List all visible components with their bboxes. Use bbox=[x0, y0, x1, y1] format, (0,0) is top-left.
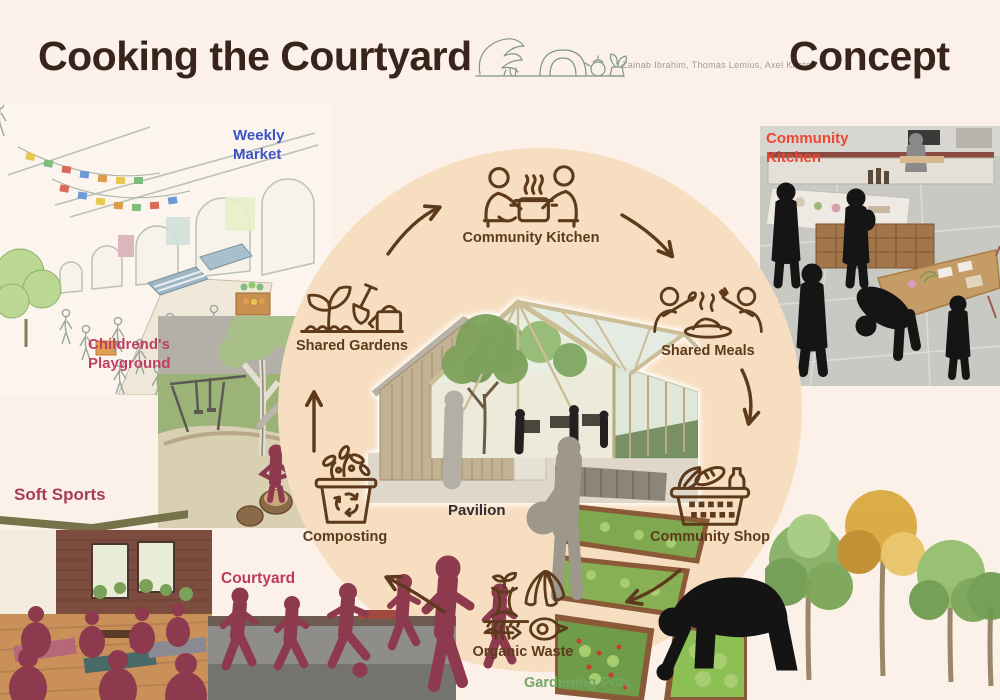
food-scraps-icon bbox=[477, 564, 571, 642]
cycle-step-community-shop: Community Shop bbox=[620, 529, 800, 546]
sprout-shovel-watering-can-icon bbox=[298, 281, 406, 337]
cycle-step-shared-gardens: Shared Gardens bbox=[262, 338, 442, 355]
cycle-step-composting: Composting bbox=[255, 529, 435, 546]
people-sharing-plate-icon bbox=[650, 286, 766, 342]
arrow-shop-to-pots bbox=[629, 570, 680, 601]
community-kitchen-photo-label: Community Kitchen bbox=[766, 130, 861, 168]
poster-authors: Zainab Ibrahim, Thomas Lemius, Axel Kris… bbox=[622, 60, 816, 70]
cycle-step-community-kitchen: Community Kitchen bbox=[441, 230, 621, 247]
gardening-pots-label: Gardening Pots bbox=[524, 674, 632, 692]
grocery-basket-icon bbox=[658, 462, 762, 528]
soft-sports-label: Soft Sports bbox=[14, 484, 106, 505]
arrow-kitchen-to-meals bbox=[622, 215, 671, 255]
concept-label: Concept bbox=[789, 33, 950, 80]
header-line-doodle bbox=[472, 24, 628, 82]
arrow-meals-to-shop bbox=[742, 370, 751, 422]
cycle-step-organic-waste: Organic Waste bbox=[433, 644, 613, 661]
cycle-step-shared-meals: Shared Meals bbox=[618, 343, 798, 360]
concept-poster: Community Kitchen Shared Meals Community… bbox=[0, 0, 1000, 700]
poster-title: Cooking the Courtyard bbox=[38, 33, 472, 80]
compost-bin-icon bbox=[303, 444, 389, 526]
arrow-gardens-to-kitchen bbox=[388, 208, 438, 254]
courtyard-label: Courtyard bbox=[221, 569, 295, 588]
cooks-at-pot-icon bbox=[471, 164, 591, 228]
weekly-market-label: Weekly Market bbox=[233, 127, 303, 165]
arrow-waste-to-composting bbox=[388, 578, 444, 612]
pavilion-label: Pavilion bbox=[448, 502, 506, 519]
childrens-playground-label: Childrend's Playground bbox=[88, 336, 200, 374]
